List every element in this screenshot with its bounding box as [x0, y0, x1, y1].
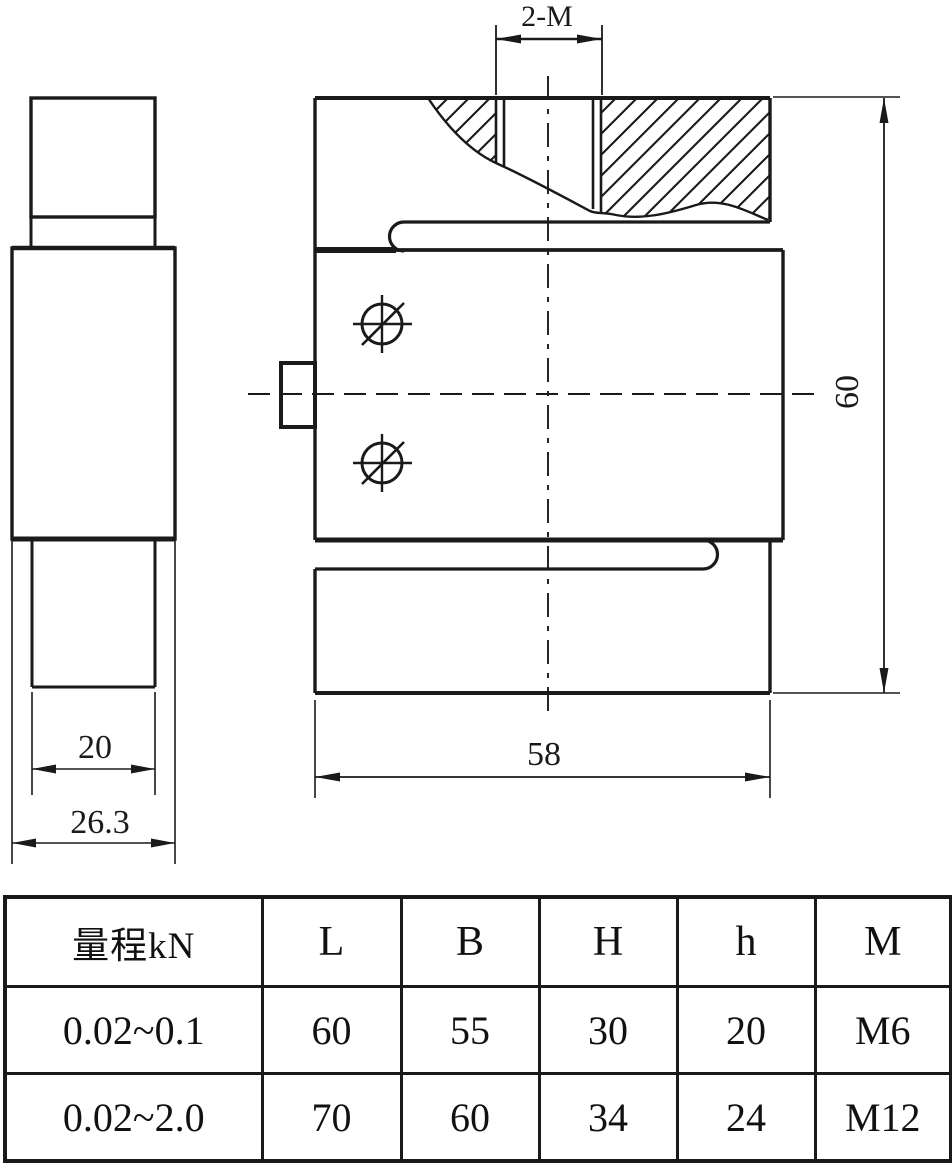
arrowhead-left — [32, 765, 56, 774]
dimension-drawing: 20 26.3 — [0, 0, 952, 897]
arrowhead-left — [12, 839, 36, 848]
thread-hole-lines — [496, 98, 601, 212]
cell-B-2: 60 — [401, 1074, 539, 1162]
arrowhead-right — [745, 773, 770, 782]
upper-slot — [390, 222, 771, 251]
dim-2m — [496, 25, 602, 95]
hatch-left-patch — [428, 98, 496, 163]
side-middle-block — [12, 248, 175, 539]
cell-M-1: M6 — [815, 987, 951, 1074]
dim-60-label: 60 — [829, 375, 866, 409]
arrowhead-right — [131, 765, 155, 774]
cell-range-2: 0.02~2.0 — [5, 1074, 262, 1162]
cell-M-2: M12 — [815, 1074, 951, 1162]
side-bottom-block — [32, 539, 155, 687]
spec-table-wrap: 量程kN L B H h M 0.02~0.1 60 55 30 20 M6 0… — [3, 895, 949, 1163]
cell-L-2: 70 — [262, 1074, 401, 1162]
arrowhead-top — [880, 98, 889, 123]
arrowhead-bottom — [880, 668, 889, 693]
side-neck — [31, 217, 155, 248]
spec-table: 量程kN L B H h M 0.02~0.1 60 55 30 20 M6 0… — [3, 895, 952, 1163]
header-h: h — [677, 897, 815, 987]
load-cell-drawing-page: 20 26.3 — [0, 0, 952, 1163]
header-M: M — [815, 897, 951, 987]
cell-h-1: 20 — [677, 987, 815, 1074]
hatch-right-patch — [601, 98, 770, 219]
arrowhead-left — [315, 773, 340, 782]
arrowhead-right — [577, 35, 602, 44]
header-range: 量程kN — [5, 897, 262, 987]
side-top-block — [31, 98, 155, 217]
local-section-hatch — [428, 98, 770, 220]
gauge-hole-lower — [353, 434, 412, 492]
cable-entry-tab — [281, 363, 315, 427]
dim-58-label: 58 — [527, 736, 561, 773]
cell-B-1: 55 — [401, 987, 539, 1074]
dim-26-3-label: 26.3 — [70, 804, 130, 841]
dim-2m-label: 2-M — [521, 0, 573, 33]
lower-slot — [315, 540, 718, 569]
dim-20-label: 20 — [78, 729, 112, 766]
cell-H-2: 34 — [539, 1074, 677, 1162]
cell-range-1: 0.02~0.1 — [5, 987, 262, 1074]
header-H: H — [539, 897, 677, 987]
cell-h-2: 24 — [677, 1074, 815, 1162]
arrowhead-left — [496, 35, 521, 44]
table-row: 0.02~0.1 60 55 30 20 M6 — [5, 987, 951, 1074]
cell-L-1: 60 — [262, 987, 401, 1074]
header-B: B — [401, 897, 539, 987]
table-row: 0.02~2.0 70 60 34 24 M12 — [5, 1074, 951, 1162]
table-header-row: 量程kN L B H h M — [5, 897, 951, 987]
header-L: L — [262, 897, 401, 987]
cell-H-1: 30 — [539, 987, 677, 1074]
gauge-hole-upper — [353, 295, 412, 353]
arrowhead-right — [151, 839, 175, 848]
